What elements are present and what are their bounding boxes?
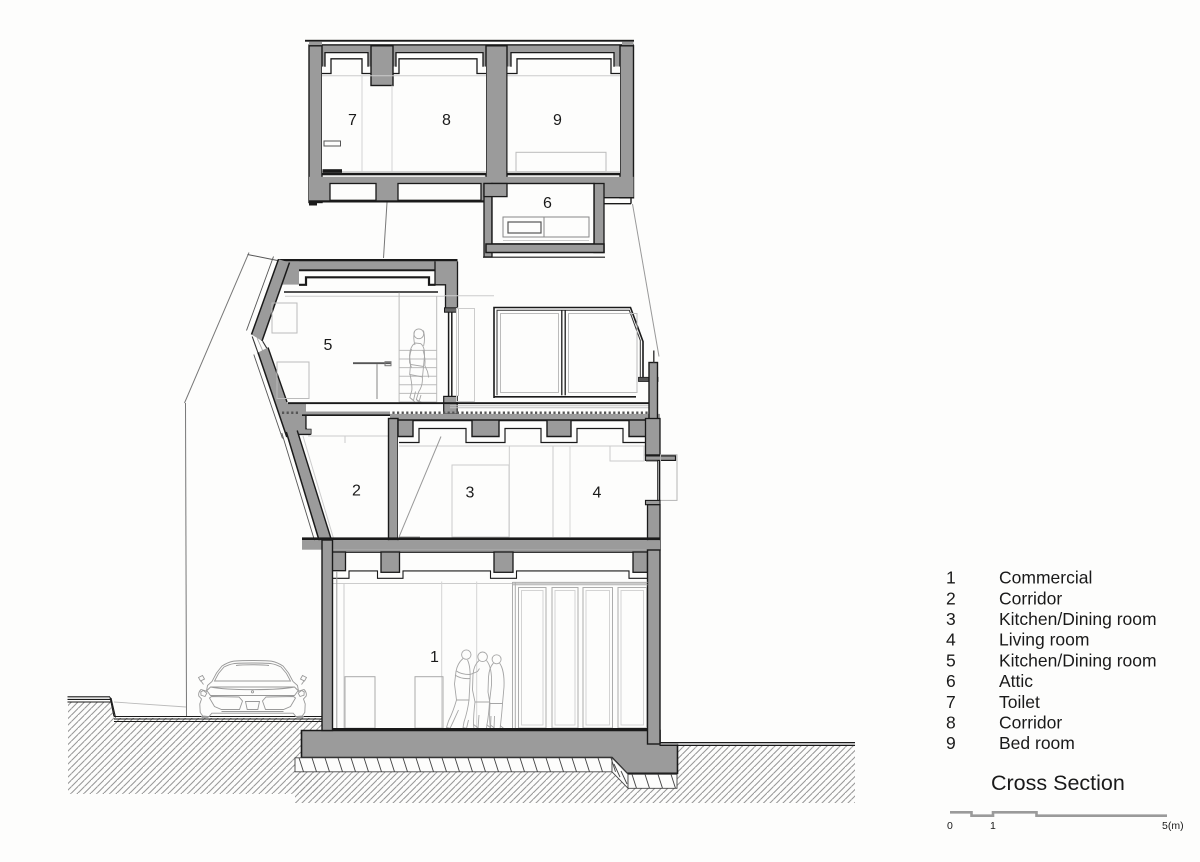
svg-text:Toilet: Toilet	[999, 692, 1040, 712]
svg-text:6: 6	[946, 671, 956, 691]
svg-text:5(m): 5(m)	[1162, 820, 1184, 832]
svg-text:9: 9	[946, 733, 956, 753]
svg-text:Kitchen/Dining room: Kitchen/Dining room	[999, 650, 1157, 670]
svg-text:6: 6	[543, 195, 552, 212]
svg-text:Corridor: Corridor	[999, 713, 1062, 733]
svg-text:Attic: Attic	[999, 671, 1033, 691]
svg-text:8: 8	[946, 713, 956, 733]
svg-text:2: 2	[946, 588, 956, 608]
svg-text:Living room: Living room	[999, 630, 1089, 650]
svg-text:Commercial: Commercial	[999, 568, 1092, 588]
svg-text:1: 1	[990, 820, 996, 832]
svg-text:1: 1	[946, 568, 956, 588]
svg-text:2: 2	[352, 483, 361, 500]
svg-text:5: 5	[324, 337, 333, 354]
svg-text:3: 3	[946, 609, 956, 629]
svg-text:7: 7	[348, 112, 357, 129]
svg-text:8: 8	[442, 112, 451, 129]
svg-text:3: 3	[466, 485, 475, 502]
svg-text:4: 4	[946, 630, 956, 650]
svg-text:1: 1	[430, 649, 439, 666]
svg-text:7: 7	[946, 692, 956, 712]
svg-text:4: 4	[593, 485, 602, 502]
svg-text:Corridor: Corridor	[999, 588, 1062, 608]
svg-text:9: 9	[553, 112, 562, 129]
svg-text:Cross Section: Cross Section	[991, 771, 1125, 795]
svg-text:Kitchen/Dining room: Kitchen/Dining room	[999, 609, 1157, 629]
svg-text:0: 0	[947, 820, 953, 832]
svg-text:5: 5	[946, 650, 956, 670]
svg-text:Bed room: Bed room	[999, 733, 1075, 753]
